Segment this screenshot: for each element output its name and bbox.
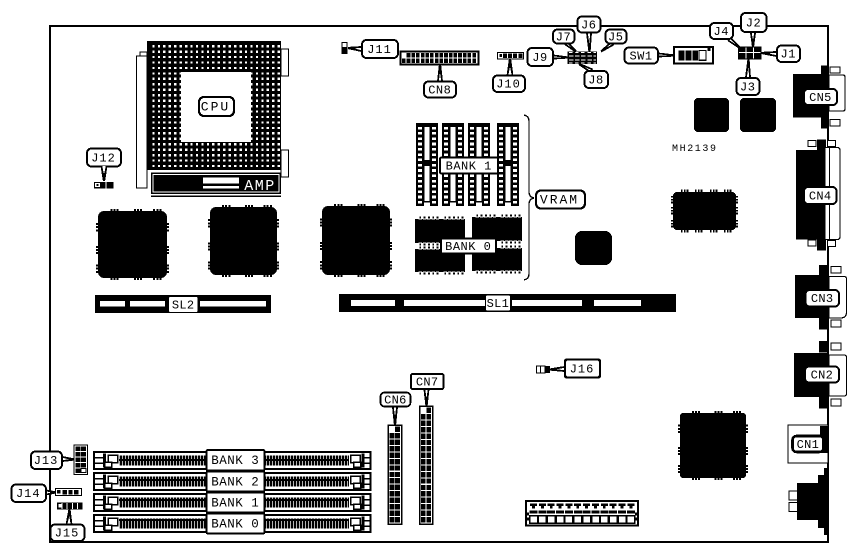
svg-text:J5: J5 [608, 30, 623, 44]
svg-text:VRAM: VRAM [540, 192, 579, 207]
svg-text:J16: J16 [570, 362, 595, 376]
svg-text:CN7: CN7 [416, 375, 439, 389]
svg-text:CN1: CN1 [797, 438, 820, 452]
svg-text:J13: J13 [34, 454, 59, 468]
svg-text:BANK 1: BANK 1 [211, 496, 259, 510]
svg-text:J6: J6 [581, 18, 596, 32]
svg-text:AMP: AMP [244, 178, 276, 195]
svg-text:J7: J7 [556, 30, 571, 44]
svg-text:SL2: SL2 [172, 298, 195, 312]
svg-text:CN3: CN3 [811, 292, 834, 306]
svg-text:CN4: CN4 [809, 189, 832, 203]
svg-text:J2: J2 [746, 16, 761, 30]
svg-text:CPU: CPU [201, 99, 230, 114]
svg-text:BANK 3: BANK 3 [211, 454, 259, 468]
svg-text:MH2139: MH2139 [672, 144, 718, 155]
svg-text:SW1: SW1 [629, 49, 652, 63]
svg-text:J4: J4 [714, 25, 729, 39]
svg-text:BANK 2: BANK 2 [211, 475, 259, 489]
svg-text:J10: J10 [496, 78, 521, 92]
svg-text:BANK 1: BANK 1 [446, 159, 492, 173]
svg-text:CN6: CN6 [384, 393, 407, 407]
svg-text:SL1: SL1 [487, 297, 510, 311]
svg-text:BANK 0: BANK 0 [445, 240, 491, 254]
svg-text:J12: J12 [91, 151, 116, 165]
svg-text:J3: J3 [740, 80, 755, 94]
svg-text:CN5: CN5 [809, 91, 832, 105]
svg-text:J15: J15 [55, 527, 80, 541]
svg-text:J8: J8 [588, 73, 603, 87]
svg-text:J1: J1 [781, 48, 796, 62]
svg-text:J14: J14 [16, 487, 41, 501]
svg-text:CN2: CN2 [811, 368, 834, 382]
svg-text:J11: J11 [367, 43, 392, 57]
svg-text:J9: J9 [532, 51, 547, 65]
svg-text:BANK 0: BANK 0 [211, 517, 259, 531]
svg-text:CN8: CN8 [428, 83, 451, 97]
